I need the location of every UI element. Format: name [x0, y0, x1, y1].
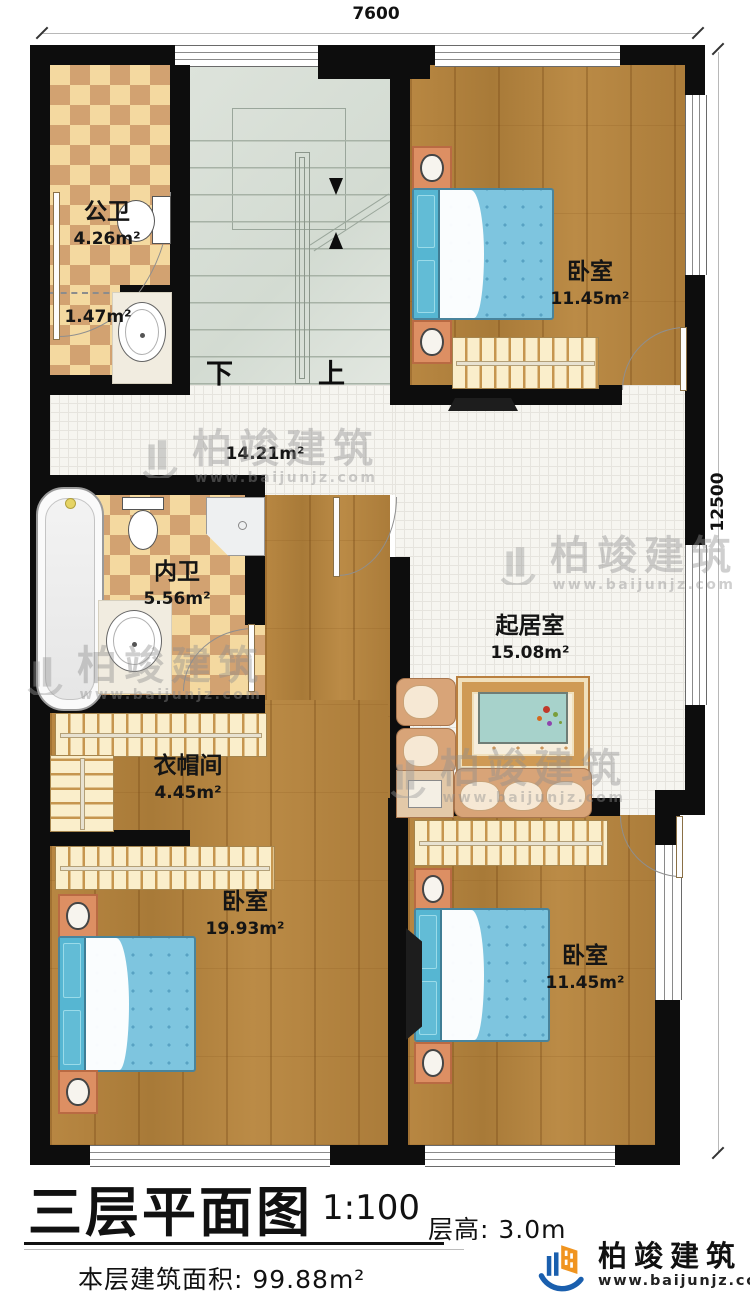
cloakroom-rack-left [50, 755, 114, 832]
dimension-line-right [718, 52, 719, 1152]
room-area: 4.45m² [118, 782, 258, 804]
stair-up-label: 上 [318, 352, 345, 391]
room-label-master-bath: 内卫 5.56m² [112, 558, 242, 610]
stair-treads [190, 140, 390, 385]
room-name: 卧室 [515, 258, 665, 288]
bed-headboard [414, 190, 440, 318]
room-area: 15.08m² [455, 642, 605, 664]
door-leaf-bedroom-tr [680, 327, 687, 391]
wardrobe-rack [414, 820, 608, 866]
room-area: 11.45m² [510, 972, 660, 994]
page-title: 三层平面图 [28, 1168, 313, 1247]
stair-down-label: 下 [206, 352, 233, 391]
stair-rail-inner [299, 157, 305, 379]
cushion [546, 781, 586, 811]
cushion [460, 781, 500, 811]
room-name: 卧室 [170, 888, 320, 918]
room-label-bedroom-br: 卧室 11.45m² [510, 942, 660, 994]
room-label-hallway: 14.21m² [200, 443, 330, 465]
sofa [454, 768, 592, 818]
sink-icon-2 [106, 610, 162, 672]
title-underline [24, 1242, 444, 1245]
bathtub-icon [36, 487, 104, 711]
room-area: 11.45m² [515, 288, 665, 310]
room-area: 14.21m² [200, 443, 330, 465]
title-underline-thin [24, 1249, 464, 1250]
wall-bedroom-tr-left [390, 65, 410, 385]
nightstand [412, 146, 452, 190]
window-right-bedroom [685, 95, 707, 275]
door-leaf-bedroom-br [676, 816, 683, 878]
side-table [396, 770, 454, 818]
window-top-left [175, 45, 318, 67]
room-label-bedroom-tr: 卧室 11.45m² [515, 258, 665, 310]
room-area: 4.26m² [52, 228, 162, 250]
dimension-top-label: 7600 [338, 4, 414, 24]
bed-headboard [60, 938, 86, 1070]
brand-website: www.baijunjz.com [598, 1273, 750, 1289]
room-name: 公卫 [52, 198, 162, 228]
room-name: 内卫 [112, 558, 242, 588]
room-label-bedroom-bl: 卧室 19.93m² [170, 888, 320, 940]
room-name: 起居室 [455, 612, 605, 642]
door-leaf-master-bath [248, 624, 255, 692]
room-name: 卧室 [510, 942, 660, 972]
bed-blanket [440, 190, 484, 318]
nightstand [58, 894, 98, 938]
room-label-public-bath: 公卫 4.26m² [52, 198, 162, 250]
wardrobe-rack [55, 846, 275, 890]
window-bottom-left [90, 1145, 330, 1167]
brand-name: 柏竣建筑 [598, 1241, 742, 1273]
floor-area-label: 本层建筑面积: 99.88m² [78, 1260, 365, 1296]
wall-cloakroom-bottom [30, 830, 190, 846]
nightstand [414, 868, 452, 910]
wall-bedroom-divider [388, 805, 408, 1145]
dimension-line-top [42, 33, 698, 34]
room-label-cloakroom: 衣帽间 4.45m² [118, 752, 258, 804]
room-area: 1.47m² [52, 306, 144, 328]
armchair [396, 728, 456, 774]
coffee-table [478, 692, 568, 744]
nightstand [414, 1042, 452, 1084]
cloakroom-rack-top [55, 713, 267, 757]
window-right-living [685, 545, 707, 705]
door-leaf-corridor [333, 497, 340, 577]
wall-public-bath-right [170, 65, 190, 385]
nightstand [58, 1070, 98, 1114]
dimension-right-label: 12500 [708, 442, 728, 562]
room-area: 19.93m² [170, 918, 320, 940]
bed-blanket [442, 910, 484, 1040]
bed-blanket [86, 938, 129, 1070]
wall-top-pier [318, 45, 430, 79]
brand-logo-icon [536, 1238, 590, 1292]
wardrobe-rack [452, 337, 599, 389]
cushion [403, 685, 439, 719]
tv-icon [406, 928, 422, 1040]
brand-logo: 柏竣建筑 www.baijunjz.com [536, 1238, 750, 1292]
wall-right-step [655, 790, 705, 815]
stair-arrow-down-icon [329, 178, 343, 195]
nightstand [412, 320, 452, 364]
toilet-icon-2 [128, 510, 158, 550]
window-bottom-right [425, 1145, 615, 1167]
window-top-right [435, 45, 620, 67]
floor-plan-canvas: 下 上 [0, 0, 750, 1306]
cushion [403, 735, 439, 767]
tv-icon [448, 398, 518, 411]
stair-arrow-up-icon [329, 232, 343, 249]
room-area: 5.56m² [112, 588, 242, 610]
cushion [503, 781, 543, 811]
drawing-scale: 1:100 [322, 1188, 420, 1228]
bed-bottom-left [58, 936, 196, 1072]
room-label-living: 起居室 15.08m² [455, 612, 605, 664]
room-label-bath-lobby: 1.47m² [52, 306, 144, 328]
room-name: 衣帽间 [118, 752, 258, 782]
armchair [396, 678, 456, 726]
toilet-tank-icon-2 [122, 497, 164, 510]
